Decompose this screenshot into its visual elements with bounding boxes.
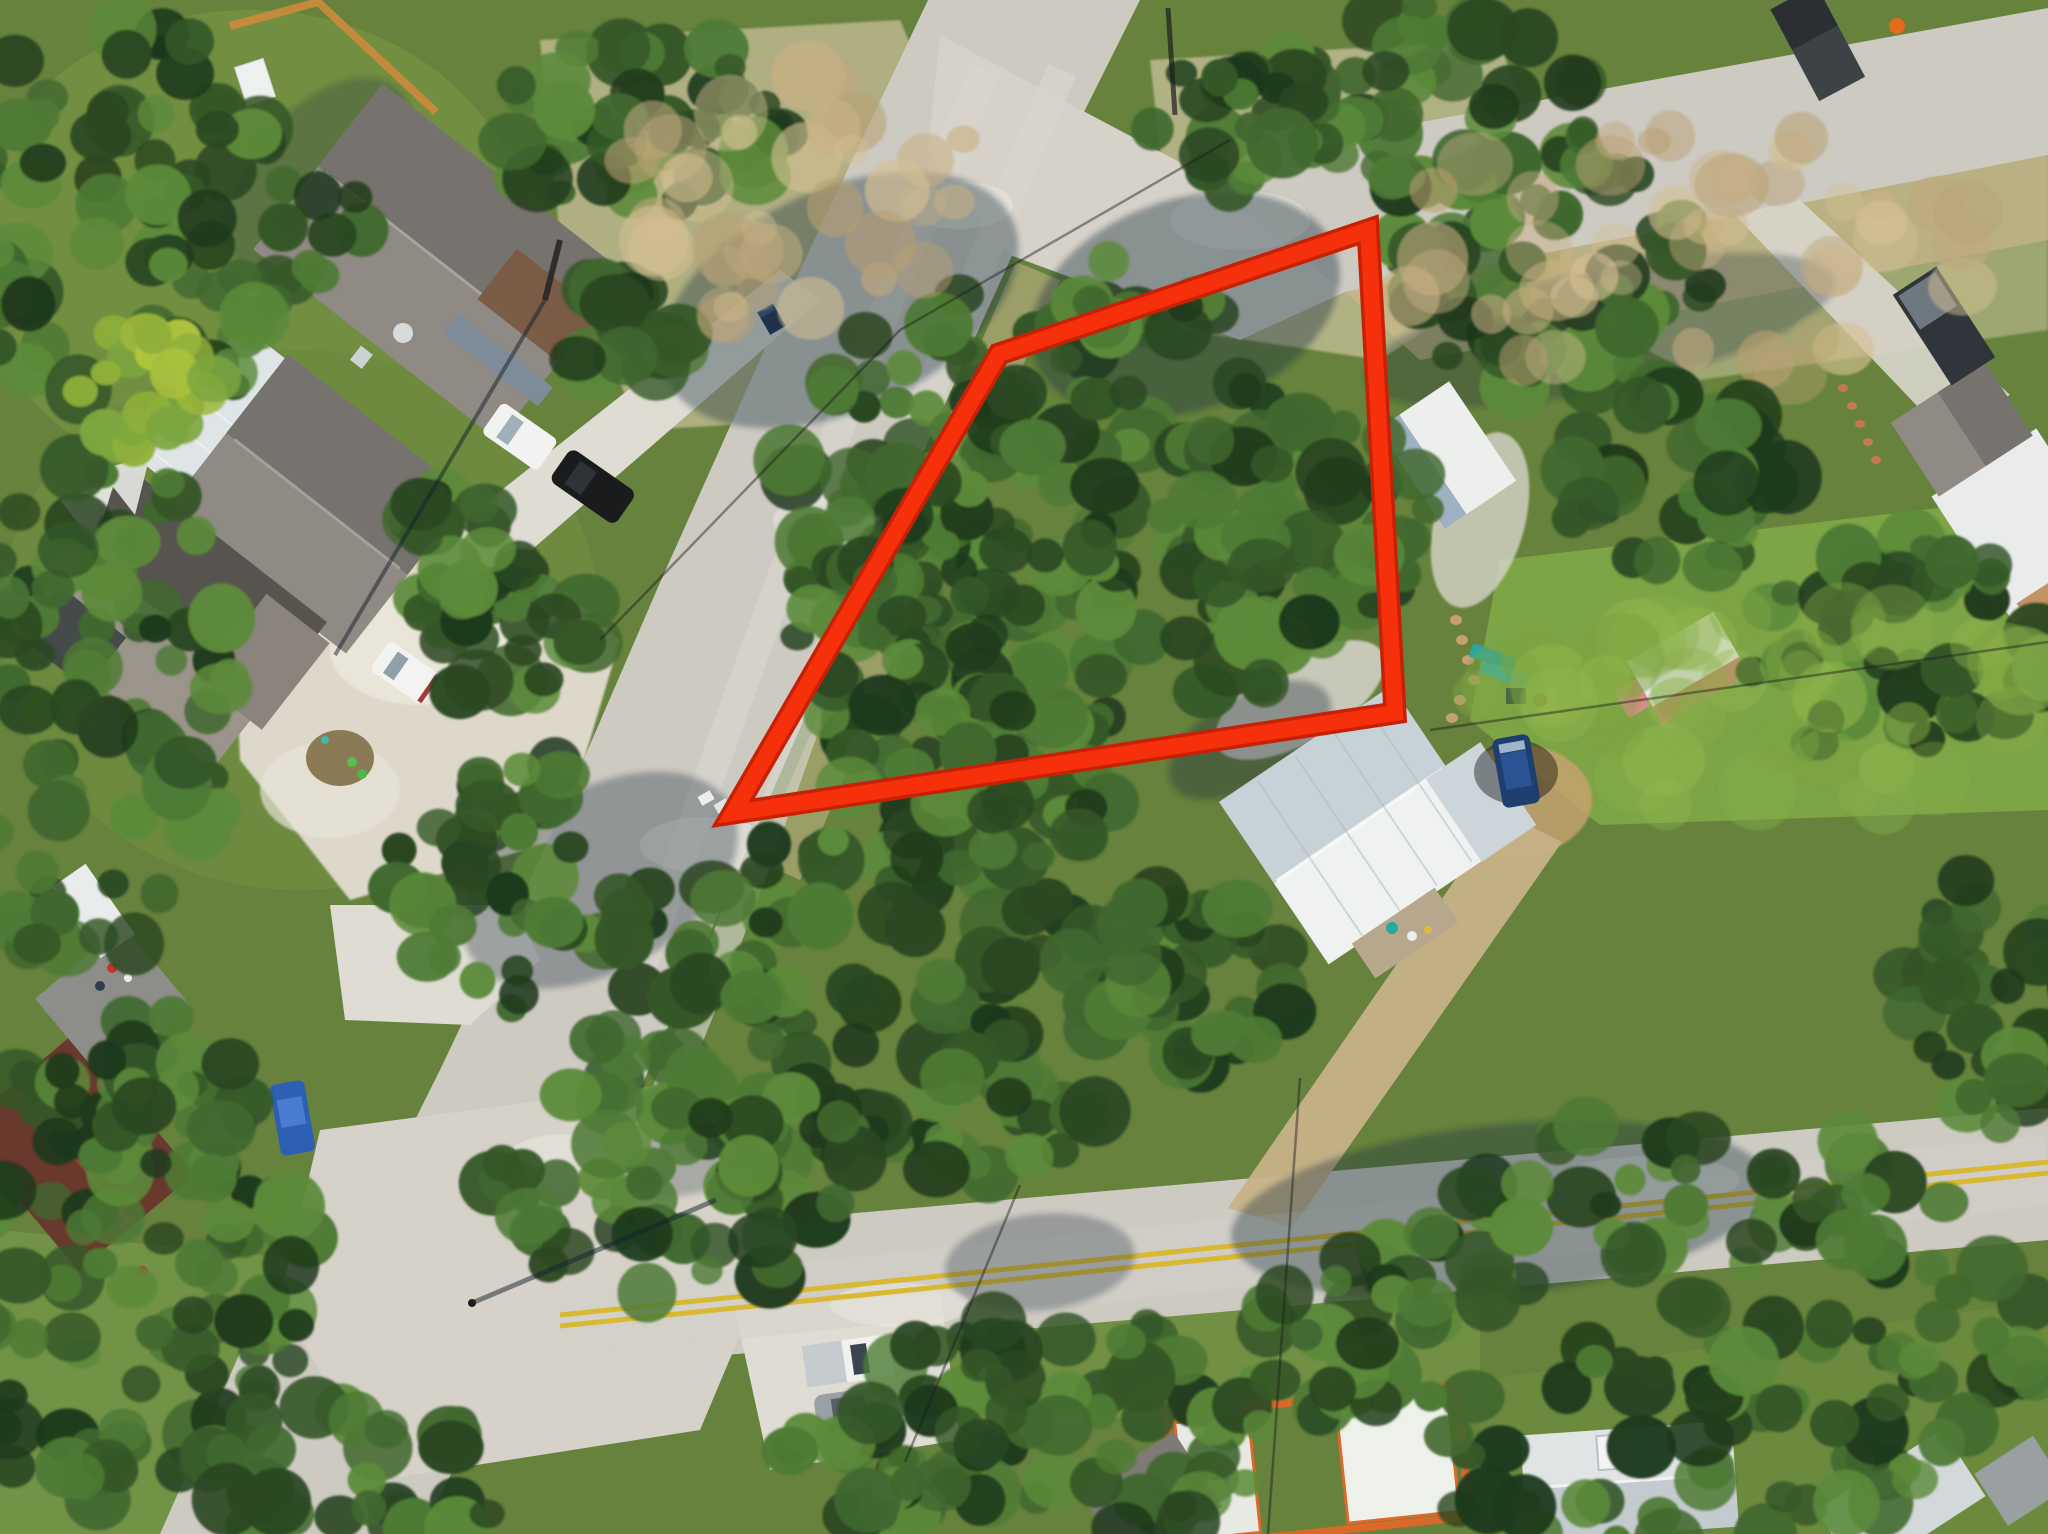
tree-canopy (721, 970, 783, 1024)
tree-canopy (863, 1497, 897, 1530)
tree-canopy (1899, 1342, 1940, 1377)
tree-canopy (278, 1309, 314, 1342)
tree-canopy (904, 293, 973, 357)
tree-canopy (929, 530, 959, 559)
tree-canopy (1005, 1133, 1053, 1178)
tree-canopy (1362, 51, 1409, 91)
tree-canopy (1810, 1400, 1859, 1447)
tree-canopy (187, 1154, 237, 1202)
tree-canopy (1309, 1366, 1356, 1411)
tree-canopy (104, 912, 164, 975)
aerial-photo-canvas (0, 0, 2048, 1534)
tree-canopy (1229, 373, 1262, 408)
tree-canopy (826, 964, 881, 1017)
tree-canopy (969, 828, 1017, 870)
dry-grass-patch (834, 135, 868, 165)
tree-canopy (172, 1297, 213, 1334)
tree-canopy (1266, 397, 1313, 440)
dry-grass-patch (740, 224, 803, 283)
tree-canopy (364, 1410, 408, 1448)
tree-canopy (390, 478, 451, 531)
tree-canopy (187, 1100, 256, 1156)
tree-canopy (138, 95, 175, 133)
dry-grass-patch (1934, 179, 2003, 244)
tree-canopy (916, 959, 966, 1004)
tree-canopy (1106, 1324, 1146, 1360)
tree-canopy (1002, 886, 1055, 935)
tree-canopy (1956, 1235, 2028, 1301)
tree-canopy (1614, 1164, 1645, 1195)
tree-canopy (945, 623, 1002, 671)
tree-canopy (1289, 1319, 1323, 1351)
tree-canopy (1771, 580, 1802, 605)
tree-canopy (807, 365, 859, 413)
dry-grass-patch (1503, 287, 1554, 334)
tree-canopy (16, 850, 59, 893)
tree-canopy (352, 1490, 387, 1526)
grass-patch (1672, 691, 1726, 745)
tree-canopy (1201, 59, 1238, 96)
dry-grass-patch (661, 153, 713, 202)
tree-canopy (460, 962, 496, 999)
tree-canopy (1558, 477, 1619, 530)
tree-canopy (20, 144, 66, 183)
tree-canopy (1336, 1317, 1399, 1370)
dry-grass-patch (807, 178, 864, 237)
tree-canopy (688, 1098, 733, 1138)
tree-canopy (1910, 535, 1943, 561)
orange-cone (1889, 18, 1905, 34)
tree-canopy (1756, 1384, 1803, 1432)
tree-canopy (1098, 927, 1161, 986)
tree-canopy (879, 387, 914, 419)
tree-canopy (1666, 1112, 1731, 1166)
grass-patch (63, 376, 98, 407)
tree-canopy (1553, 1097, 1618, 1156)
tree-canopy (903, 1141, 970, 1198)
tree-canopy (178, 189, 237, 247)
tree-canopy (990, 691, 1036, 731)
tree-canopy (1842, 1173, 1891, 1213)
tree-canopy (1576, 1345, 1613, 1378)
tree-canopy (1001, 585, 1046, 626)
tree-canopy (500, 1149, 545, 1191)
tree-canopy (1663, 1184, 1708, 1226)
tree-canopy (188, 583, 255, 653)
tree-canopy (1235, 112, 1265, 143)
tree-canopy (1667, 1409, 1735, 1466)
tree-canopy (28, 99, 59, 132)
tree-canopy (1544, 55, 1601, 111)
dry-grass-patch (1638, 128, 1672, 155)
dry-grass-patch (1499, 335, 1548, 386)
tree-canopy (196, 1256, 238, 1295)
tree-canopy (154, 736, 216, 789)
dry-grass-patch (947, 126, 980, 153)
tree-canopy (554, 619, 606, 665)
tree-canopy (1110, 375, 1148, 410)
tree-canopy (848, 675, 916, 736)
tree-canopy (1040, 928, 1104, 994)
tree-canopy (981, 937, 1040, 995)
deck-item (1424, 926, 1432, 934)
tree-canopy (1111, 879, 1168, 931)
grass-patch (1852, 777, 1915, 835)
tree-canopy (1075, 654, 1127, 698)
tree-canopy (1432, 342, 1463, 370)
tree-canopy (1595, 297, 1659, 358)
tree-canopy (817, 1101, 860, 1143)
deck-clutter (95, 981, 105, 991)
tree-canopy (112, 1077, 177, 1135)
tree-canopy (1240, 659, 1288, 708)
tree-canopy (753, 424, 825, 495)
tree-canopy (1228, 538, 1295, 592)
tree-canopy (1, 276, 55, 331)
tree-canopy (818, 826, 849, 856)
tree-canopy (1867, 1384, 1910, 1421)
tree-canopy (961, 1292, 1026, 1352)
tree-canopy (1605, 1225, 1659, 1277)
grass-patch (1976, 687, 2047, 755)
tree-canopy (838, 312, 892, 359)
tree-canopy (417, 809, 461, 847)
grass-patch (1886, 702, 1931, 745)
tree-canopy (214, 1294, 273, 1348)
grass-patch (1779, 650, 1822, 696)
tree-canopy (13, 923, 61, 963)
tree-canopy (33, 1118, 82, 1166)
tree-canopy (532, 751, 590, 798)
tree-canopy (1412, 495, 1444, 524)
tree-canopy (165, 18, 214, 64)
tree-canopy (1088, 241, 1129, 282)
tree-canopy (1489, 1198, 1553, 1256)
tree-canopy (201, 1038, 259, 1090)
tree-canopy (338, 181, 372, 213)
pond-plant (347, 757, 357, 767)
tree-canopy (1414, 1381, 1447, 1412)
dry-grass-patch (698, 294, 756, 343)
tree-canopy (1726, 1219, 1777, 1264)
tree-canopy (439, 559, 498, 617)
tree-canopy (748, 1022, 785, 1061)
tree-canopy (1251, 446, 1293, 483)
tree-canopy (1279, 594, 1340, 650)
tree-canopy (890, 1321, 941, 1371)
tree-canopy (747, 822, 791, 867)
tree-canopy (1984, 1053, 2048, 1107)
tree-canopy (691, 1257, 722, 1285)
tree-canopy (1671, 1155, 1701, 1184)
tree-canopy (961, 1349, 1001, 1382)
tree-canopy (1806, 1300, 1854, 1349)
tree-canopy (504, 635, 542, 666)
tree-canopy (470, 1500, 505, 1529)
tree-canopy (986, 1077, 1032, 1117)
dry-grass-patch (1507, 171, 1559, 225)
tree-canopy (524, 662, 564, 696)
tree-canopy (1682, 542, 1742, 592)
tree-canopy (149, 996, 194, 1037)
tree-canopy (1228, 1469, 1262, 1496)
dry-grass-patch (1855, 200, 1908, 245)
tree-canopy (524, 897, 583, 948)
grass-patch (1658, 607, 1737, 671)
tree-canopy (1813, 1470, 1879, 1534)
pond-ornament (321, 736, 329, 744)
pond-plant (357, 769, 367, 779)
tree-canopy (1050, 344, 1082, 374)
tree-canopy (540, 1069, 602, 1122)
tree-canopy (57, 1453, 105, 1499)
tree-canopy (177, 517, 216, 556)
tree-canopy (598, 22, 651, 74)
tree-canopy (1919, 1182, 1968, 1222)
tree-canopy (1070, 458, 1139, 514)
tree-canopy (503, 753, 540, 787)
grass-patch (1579, 655, 1632, 707)
tree-canopy (742, 1207, 798, 1265)
tree-canopy (98, 869, 129, 898)
tree-canopy (54, 1084, 91, 1119)
tree-canopy (1892, 1460, 1938, 1500)
tree-canopy (149, 248, 188, 282)
tree-canopy (298, 258, 339, 294)
tree-canopy (1024, 1395, 1092, 1456)
tree-canopy (953, 1419, 1008, 1468)
tree-canopy (748, 907, 783, 938)
tree-canopy (0, 493, 40, 531)
tree-canopy (1693, 450, 1760, 515)
tree-canopy (1634, 537, 1680, 584)
tree-canopy (1955, 1079, 1991, 1115)
grass-patch (1851, 585, 1935, 670)
tree-canopy (1188, 416, 1235, 465)
tree-canopy (823, 497, 875, 543)
tree-canopy (429, 665, 490, 720)
tree-canopy (45, 1053, 80, 1089)
tree-canopy (549, 336, 606, 381)
tree-canopy (70, 217, 124, 269)
tree-canopy (1036, 1313, 1096, 1367)
tree-canopy (495, 1188, 563, 1245)
tree-canopy (102, 30, 152, 79)
dry-grass-patch (934, 185, 975, 220)
tree-canopy (1709, 1326, 1779, 1396)
tree-canopy (219, 282, 289, 351)
tree-canopy (1561, 1479, 1610, 1528)
dry-grass-patch (1695, 153, 1769, 217)
tree-canopy (1191, 1012, 1241, 1056)
tree-canopy (1131, 107, 1173, 150)
tree-canopy (762, 1427, 819, 1475)
tree-canopy (886, 350, 922, 385)
tree-canopy (1050, 808, 1108, 861)
tree-canopy (1059, 1076, 1131, 1146)
tree-canopy (1179, 127, 1240, 182)
tree-canopy (837, 1382, 903, 1445)
dry-grass-patch (1807, 245, 1862, 296)
tree-canopy (690, 870, 756, 926)
tree-canopy (816, 1184, 854, 1222)
tree-canopy (787, 882, 853, 949)
tree-canopy (1160, 616, 1212, 660)
tree-canopy (1321, 1266, 1352, 1296)
tree-canopy (196, 111, 239, 148)
tree-canopy (1590, 1192, 1621, 1219)
tree-canopy (1027, 538, 1064, 572)
tree-canopy (50, 679, 103, 734)
tree-canopy (122, 1366, 161, 1403)
tree-canopy (258, 203, 308, 252)
tree-canopy (534, 81, 595, 140)
tree-canopy (858, 623, 890, 650)
tree-canopy (70, 110, 131, 162)
grass-patch (1753, 713, 1819, 770)
tree-canopy (0, 685, 58, 734)
dry-grass-patch (1684, 209, 1725, 245)
grass-patch (1587, 712, 1642, 759)
tree-canopy (38, 522, 99, 578)
tree-canopy (1972, 1317, 2009, 1356)
tree-canopy (1919, 1418, 1966, 1466)
tree-canopy (601, 1121, 651, 1166)
grass-patch (146, 407, 188, 450)
grass-patch (1452, 671, 1503, 718)
tree-canopy (1765, 1481, 1802, 1512)
dry-grass-patch (619, 205, 688, 276)
dry-grass-patch (1570, 253, 1619, 301)
tree-canopy (43, 1312, 100, 1362)
tree-canopy (1671, 1279, 1731, 1338)
tree-canopy (151, 468, 185, 498)
tree-canopy (140, 1149, 172, 1178)
dry-grass-patch (1672, 328, 1714, 371)
dry-grass-patch (771, 40, 845, 110)
dry-grass-patch (605, 137, 660, 184)
tree-canopy (979, 527, 1033, 573)
deck-item (1407, 931, 1417, 941)
tree-canopy (626, 1166, 663, 1201)
tree-canopy (1607, 1415, 1676, 1478)
tree-canopy (497, 66, 536, 105)
tree-canopy (1022, 842, 1054, 870)
aerial-photo (0, 0, 2048, 1534)
tree-canopy (594, 873, 644, 918)
tree-canopy (1938, 855, 1994, 906)
tree-canopy (500, 813, 538, 851)
satellite-dish (393, 323, 413, 343)
tree-canopy (499, 975, 539, 1014)
dry-grass-patch (1774, 112, 1828, 164)
tree-canopy (1638, 1356, 1673, 1389)
tree-canopy (882, 641, 923, 679)
tree-canopy (553, 832, 589, 864)
tree-canopy (858, 882, 926, 946)
tree-canopy (1243, 1410, 1277, 1440)
tree-canopy (1613, 377, 1672, 434)
tree-canopy (141, 874, 179, 913)
tree-canopy (920, 1048, 984, 1105)
tree-canopy (718, 1135, 779, 1196)
tree-canopy (418, 1420, 483, 1474)
grass-patch (187, 356, 241, 403)
tree-canopy (28, 781, 90, 842)
tree-canopy (1398, 1278, 1457, 1327)
tree-canopy (1920, 958, 1980, 1015)
tree-canopy (618, 1263, 677, 1323)
tree-canopy (1250, 1360, 1301, 1401)
tree-canopy (950, 576, 988, 614)
tree-canopy (397, 932, 458, 982)
tree-canopy (580, 274, 651, 333)
dry-grass-patch (1595, 122, 1635, 160)
tree-canopy (890, 832, 943, 884)
tree-canopy (1447, 0, 1518, 61)
tree-canopy (210, 659, 249, 698)
tree-canopy (83, 1248, 118, 1279)
tree-canopy (1818, 1112, 1878, 1172)
tree-canopy (460, 486, 499, 524)
tree-canopy (569, 1015, 624, 1065)
tree-canopy (1095, 1440, 1137, 1475)
tree-canopy (1501, 1160, 1553, 1207)
tree-canopy (192, 1463, 263, 1534)
tree-canopy (1167, 471, 1237, 529)
tree-canopy (203, 1200, 254, 1243)
dry-grass-patch (1410, 168, 1458, 213)
dry-grass-patch (777, 277, 844, 340)
tree-canopy (612, 1207, 673, 1262)
tree-canopy (1695, 399, 1762, 453)
tree-canopy (1202, 880, 1273, 938)
tree-canopy (1062, 520, 1117, 577)
tree-canopy (144, 1222, 184, 1254)
tree-canopy (254, 1171, 325, 1240)
tree-canopy (1747, 1149, 1801, 1199)
tree-canopy (136, 1315, 174, 1350)
grass-patch (134, 320, 172, 354)
tree-canopy (1913, 1031, 1946, 1063)
tree-canopy (263, 1236, 319, 1295)
tree-canopy (982, 1019, 1029, 1061)
tree-canopy (1424, 1415, 1474, 1457)
deck-item (1386, 922, 1398, 934)
dry-grass-patch (1378, 266, 1440, 326)
tree-canopy (139, 615, 172, 643)
tree-canopy (96, 516, 161, 569)
tree-canopy (1816, 1209, 1888, 1271)
tree-canopy (66, 1209, 101, 1245)
grass-patch (1640, 779, 1693, 831)
grass-patch (91, 360, 121, 385)
tree-canopy (9, 1318, 49, 1358)
